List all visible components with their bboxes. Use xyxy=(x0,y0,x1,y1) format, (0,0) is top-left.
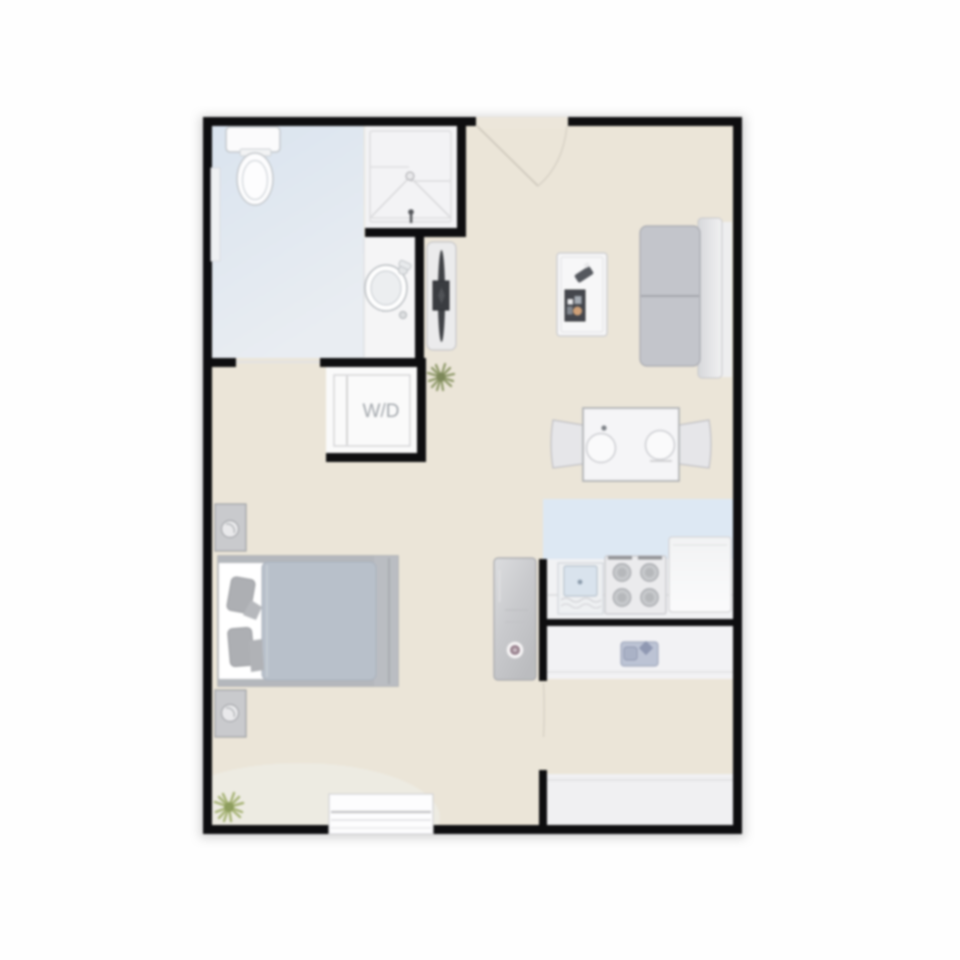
svg-text:W/D: W/D xyxy=(363,401,400,422)
